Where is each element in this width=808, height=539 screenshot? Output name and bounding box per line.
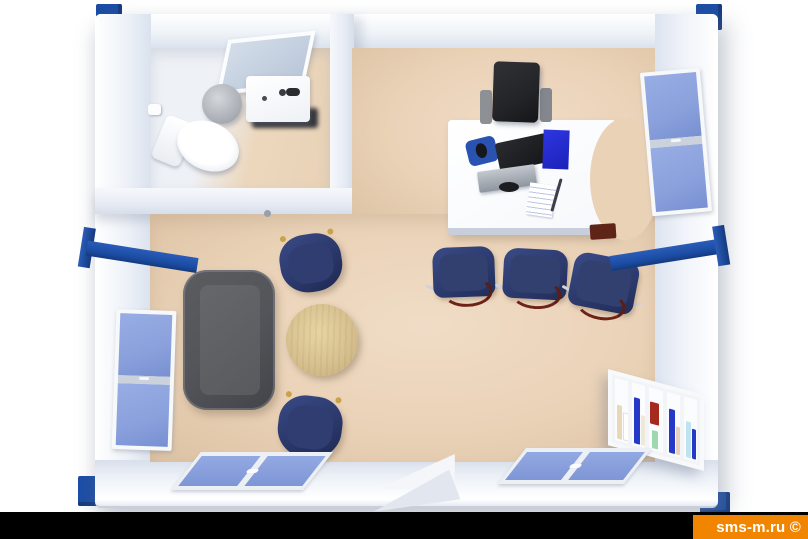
shelf-slot (649, 387, 662, 453)
binder-icon (634, 397, 640, 445)
armchair-cushion (286, 241, 336, 286)
window-pane (644, 72, 701, 140)
binder-icon (652, 430, 658, 450)
chair-armrest-right (540, 88, 552, 122)
office-chair (480, 60, 552, 130)
sofa-seat (200, 285, 260, 395)
binder-icon (641, 415, 645, 446)
visitor-chair-1 (432, 246, 496, 308)
window-pane (650, 144, 707, 212)
watermark-bar: sms-m.ru © (693, 515, 808, 539)
binder-icon (692, 429, 696, 460)
drain-icon (262, 96, 267, 101)
beam-cap (712, 225, 730, 266)
document (526, 182, 556, 217)
visitor-chair-2 (501, 247, 568, 310)
faucet-knob-icon (279, 89, 286, 96)
shelf-slot (632, 383, 645, 449)
window-handle-icon (671, 139, 681, 143)
binder-icon (617, 405, 622, 440)
armchair-cushion (284, 403, 335, 451)
shelf-slot (615, 378, 628, 444)
bathroom-wall-bottom (95, 188, 354, 214)
box-icon (650, 402, 659, 426)
monitor-base (499, 182, 519, 192)
chair-backrest (492, 61, 540, 123)
floor-plan-render: sms-m.ru © (0, 0, 808, 539)
coffee-table (286, 304, 358, 376)
binder-icon (676, 426, 680, 455)
window-right-wall (640, 68, 712, 217)
bathroom-door-handle (264, 210, 271, 217)
under-desk-red-box (590, 223, 617, 240)
mouse-icon (474, 142, 488, 159)
binder-icon (669, 408, 675, 454)
shelf-slot (667, 392, 680, 458)
window-pane (116, 383, 170, 447)
bathroom-wall-right (330, 14, 354, 214)
wall-top (95, 14, 718, 50)
watermark-text: sms-m.ru © (716, 520, 801, 535)
binder-icon (623, 412, 628, 442)
door-leaf-shadow (368, 440, 508, 518)
beam-bar (86, 241, 199, 273)
faucet-icon (286, 88, 300, 96)
chair-underside-rim (442, 276, 493, 308)
shelf-slot (684, 396, 697, 462)
washbasin (246, 76, 310, 122)
toilet (156, 112, 246, 178)
binder-icon (686, 421, 691, 458)
blue-folder (542, 130, 569, 170)
bottom-black-strip (0, 512, 808, 539)
window-handle-icon (139, 377, 149, 380)
entrance-door-open (368, 440, 508, 518)
beam-bar (609, 239, 722, 271)
chair-armrest-left (480, 90, 492, 124)
window-left-wall (112, 309, 177, 451)
toilet-paper-roll (148, 104, 161, 115)
sofa (183, 270, 275, 410)
window-pane (118, 313, 172, 377)
